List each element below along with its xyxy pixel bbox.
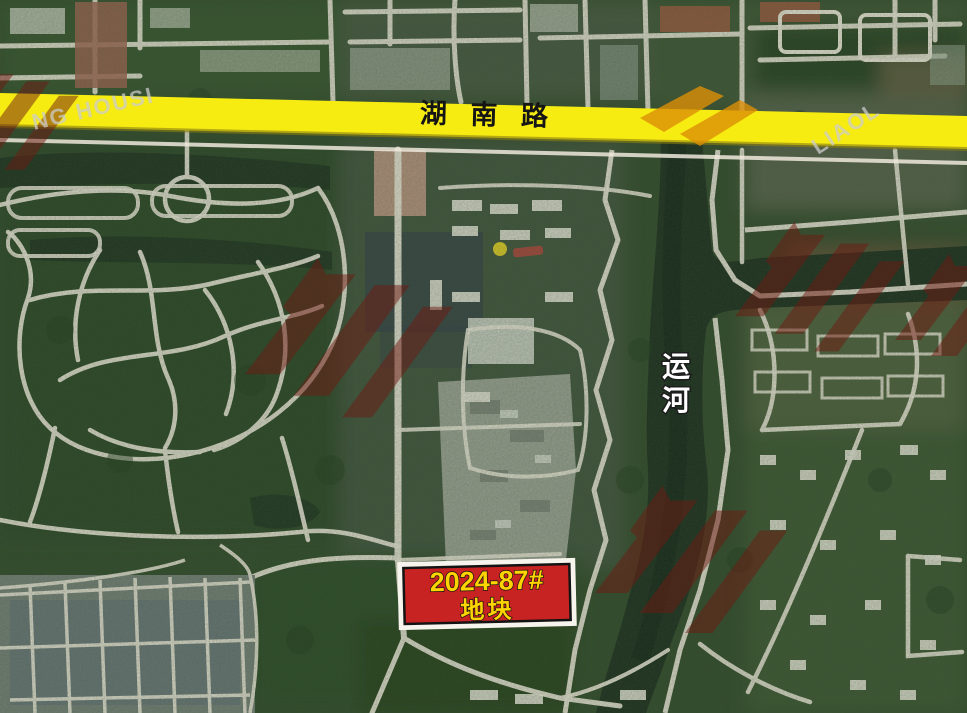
canal-label-char-1: 运: [662, 351, 690, 382]
satellite-map[interactable]: 湖 南 路 NG HOUSI LIAOL 运 河 2024-87# 地块: [0, 0, 967, 713]
plot-marker-line1: 2024-87#: [429, 565, 544, 598]
hunan-road-label: 湖 南 路: [420, 97, 557, 131]
canal-label-char-2: 河: [662, 385, 690, 416]
plot-marker-line2: 地块: [460, 596, 515, 624]
plot-marker: 2024-87# 地块: [397, 558, 577, 630]
satellite-map-canvas: 湖 南 路 NG HOUSI LIAOL 运 河 2024-87# 地块: [0, 0, 967, 713]
